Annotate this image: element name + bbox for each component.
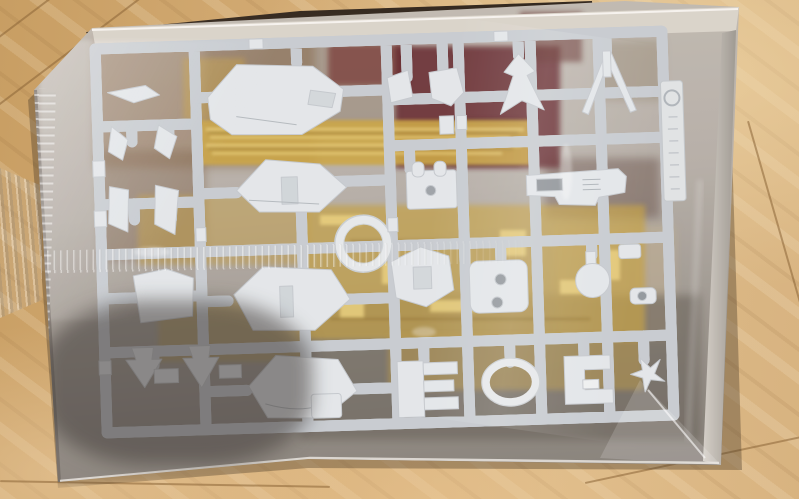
bag-haze	[0, 0, 799, 499]
bag-left-flap	[0, 168, 42, 318]
kit-box-in-bag	[0, 0, 799, 499]
floor-plank-seam	[0, 480, 330, 488]
photo-scene	[0, 0, 799, 499]
